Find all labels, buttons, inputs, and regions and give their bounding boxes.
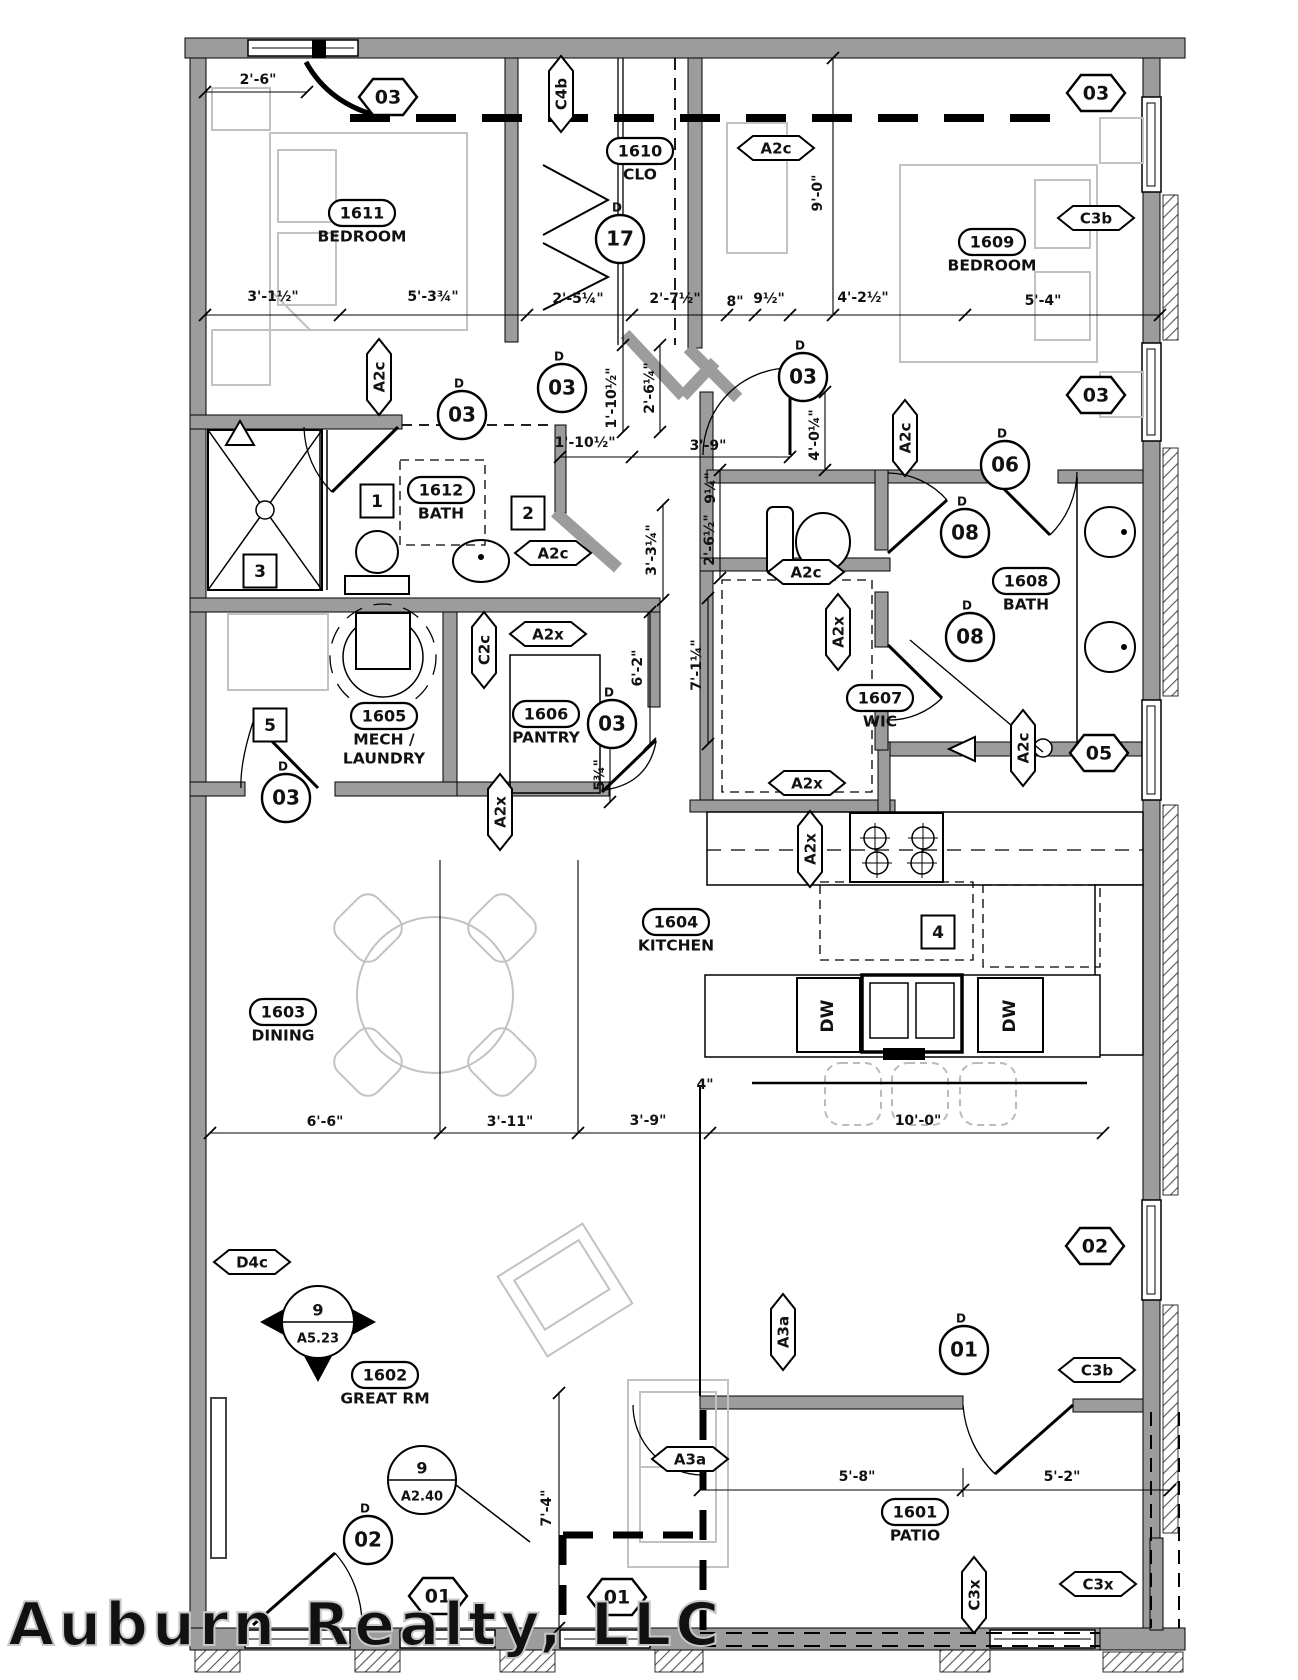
door-number: 01	[950, 1338, 978, 1362]
toilet-tank	[345, 576, 409, 594]
wall	[190, 415, 402, 429]
dimension-text: 3'-3¼"	[644, 524, 660, 575]
marker-sheet: A5.23	[297, 1332, 339, 1347]
wall-type-label: A2x	[791, 775, 823, 793]
wall-type-label: A2c	[761, 140, 792, 158]
keynote-square: 1	[361, 485, 394, 518]
wall-type-label: A3a	[775, 1316, 793, 1348]
door-letter: D	[795, 339, 805, 353]
wall	[335, 782, 460, 796]
window-number: 03	[1083, 83, 1109, 105]
dimension-text: 3'-11"	[487, 1114, 534, 1130]
wall-type-tag: C3x	[1060, 1572, 1136, 1596]
wall-type-label: A2c	[897, 423, 915, 454]
dimension-text: 2'-5¼"	[552, 291, 603, 307]
room-name: KITCHEN	[638, 937, 714, 955]
room-tag: 1604KITCHEN	[638, 909, 714, 955]
wall-type-label: C3x	[966, 1579, 984, 1610]
wall-type-label: A2c	[791, 564, 822, 582]
room-name: GREAT RM	[340, 1390, 429, 1408]
room-number: 1611	[340, 204, 385, 223]
dimension-text: 2'-6¼"	[642, 362, 658, 413]
door-letter: D	[604, 686, 614, 700]
door-number: 03	[789, 365, 817, 389]
marker-number: 9	[416, 1459, 427, 1478]
room-name: LAUNDRY	[343, 750, 426, 768]
room-tag: 1603DINING	[250, 999, 316, 1045]
dimension-text: 1'-10½"	[604, 367, 620, 428]
wall-type-tag: A3a	[652, 1447, 728, 1471]
toilet	[356, 531, 398, 573]
dimension-text: 4"	[696, 1077, 713, 1093]
room-name: BATH	[418, 505, 464, 523]
appliance-label: DW	[1000, 999, 1020, 1032]
wall-type-tag: C3b	[1058, 206, 1134, 230]
room-name: DINING	[251, 1027, 314, 1045]
door-number: 03	[272, 786, 300, 810]
wall-type-label: A2x	[802, 833, 820, 865]
door-letter: D	[962, 599, 972, 613]
wall-type-label: C2c	[476, 635, 494, 665]
door-number: 08	[956, 625, 984, 649]
wall	[1100, 1628, 1185, 1650]
door-number: 02	[354, 1528, 382, 1552]
dimension-text: 5'-3¾"	[407, 289, 458, 305]
window-number: 03	[375, 87, 401, 109]
wall	[190, 782, 245, 796]
keynote-number: 4	[932, 923, 944, 943]
wall-type-tag: A2x	[510, 622, 586, 646]
room-name: PATIO	[890, 1527, 940, 1545]
window-tag: 03	[1067, 377, 1125, 413]
wall	[1073, 1399, 1143, 1412]
door-letter: D	[612, 201, 622, 215]
wall-type-tag: A3a	[771, 1294, 795, 1370]
wall-type-label: A2x	[532, 626, 564, 644]
room-number: 1605	[362, 707, 407, 726]
wall-type-tag: A2c	[768, 560, 844, 584]
wall-type-tag: C3x	[962, 1557, 986, 1633]
wall-type-label: A2x	[830, 616, 848, 648]
floor-plan: 1611BEDROOM1610CLO1609BEDROOM1612BATH160…	[0, 0, 1298, 1680]
room-tag: 1601PATIO	[882, 1499, 948, 1545]
room-number: 1610	[618, 142, 663, 161]
wall	[1058, 470, 1143, 483]
wall-type-tag: A2x	[826, 594, 850, 670]
keynote-number: 3	[254, 562, 266, 582]
dimension-text: 1'-10½"	[554, 435, 615, 451]
wall-block	[312, 40, 326, 58]
sink	[453, 540, 509, 582]
keynote-square: 4	[922, 916, 955, 949]
window	[1142, 343, 1161, 441]
wall-type-label: A2c	[538, 545, 569, 563]
dimension-text: 9¼"	[703, 472, 719, 504]
keynote-number: 2	[522, 504, 534, 524]
marker-sheet: A2.40	[401, 1490, 443, 1505]
kitchen-sink	[862, 975, 962, 1052]
wall-type-label: C3b	[1080, 210, 1112, 228]
dimension-text: 6'-6"	[307, 1114, 344, 1130]
room-number: 1602	[363, 1366, 408, 1385]
hatched-masonry	[1103, 1652, 1183, 1672]
dimension-text: 5¾"	[592, 759, 608, 791]
sink	[1085, 507, 1135, 557]
room-name: CLO	[623, 166, 657, 184]
dimension-text: 4'-0¼"	[807, 409, 823, 460]
dimension-text: 6'-2"	[630, 650, 646, 687]
wall-type-label: C4b	[553, 78, 571, 110]
dimension-text: 9½"	[753, 291, 785, 307]
room-number: 1607	[858, 689, 903, 708]
keynote-square: 2	[512, 497, 545, 530]
window	[1142, 1200, 1161, 1300]
drain	[256, 501, 274, 519]
wall-type-tag: C3b	[1059, 1358, 1135, 1382]
keynote-square: 3	[244, 555, 277, 588]
room-number: 1603	[261, 1003, 306, 1022]
dimension-text: 2'-7½"	[649, 291, 700, 307]
door-number: 03	[548, 376, 576, 400]
wall-type-tag: D4c	[214, 1250, 290, 1274]
appliance-label: DW	[818, 999, 838, 1032]
room-number: 1606	[524, 705, 569, 724]
room-name: WIC	[863, 713, 897, 731]
window-tag: 02	[1066, 1228, 1124, 1264]
door-letter: D	[454, 377, 464, 391]
wall-type-label: A2c	[371, 362, 389, 393]
room-tag: 1606PANTRY	[512, 701, 581, 747]
window-number: 03	[1083, 385, 1109, 407]
room-name: MECH /	[353, 731, 415, 749]
room-name: BEDROOM	[318, 228, 407, 246]
door-number: 08	[951, 521, 979, 545]
watermark: Auburn Realty, LLC	[8, 1590, 723, 1660]
wall	[700, 1396, 963, 1409]
dimension-text: 3'-9"	[690, 438, 727, 454]
wall-type-label: C3x	[1082, 1576, 1113, 1594]
washer-box	[356, 613, 410, 669]
wall	[190, 598, 660, 612]
wall-type-label: D4c	[236, 1254, 268, 1272]
door-letter: D	[956, 1312, 966, 1326]
wall	[707, 470, 992, 483]
wall	[190, 58, 206, 1650]
marker-number: 9	[312, 1301, 323, 1320]
wall	[690, 800, 895, 812]
window-tag: 05	[1070, 735, 1128, 771]
cabinet	[1095, 885, 1143, 1055]
wall-type-tag: A2c	[367, 339, 391, 415]
room-number: 1608	[1004, 572, 1049, 591]
dimension-text: 8"	[726, 294, 743, 310]
keynote-number: 1	[371, 492, 383, 512]
hatched-masonry	[1163, 195, 1178, 340]
door-number: 06	[991, 453, 1019, 477]
dimension-text: 7'-4"	[539, 1490, 555, 1527]
door-letter: D	[360, 1502, 370, 1516]
dimension-text: 5'-2"	[1044, 1469, 1081, 1485]
keynote-square: 5	[254, 709, 287, 742]
wall-type-label: A2c	[1015, 733, 1033, 764]
wall-type-tag: A2c	[515, 541, 591, 565]
room-number: 1612	[419, 481, 464, 500]
wall	[875, 470, 888, 550]
dimension-text: 3'-9"	[630, 1113, 667, 1129]
wall	[875, 592, 888, 647]
hatched-masonry	[1163, 448, 1178, 696]
sink	[1085, 622, 1135, 672]
wall-type-tag: C2c	[472, 612, 496, 688]
dimension-text: 10'-0"	[895, 1113, 942, 1129]
room-name: BATH	[1003, 596, 1049, 614]
window-tag: 03	[1067, 75, 1125, 111]
wall-type-tag: A2x	[798, 811, 822, 887]
room-number: 1609	[970, 233, 1015, 252]
faucet	[883, 1048, 925, 1060]
wall-type-tag: C4b	[549, 56, 573, 132]
wall-type-tag: A2x	[488, 774, 512, 850]
dimension-text: 4'-2½"	[837, 290, 888, 306]
wall-type-tag: A2x	[769, 771, 845, 795]
wall	[457, 782, 609, 796]
door-letter: D	[278, 760, 288, 774]
door-letter: D	[554, 350, 564, 364]
dimension-text: 3'-1½"	[247, 289, 298, 305]
dimension-text: 2'-6½"	[702, 514, 718, 565]
dimension-text: 5'-4"	[1025, 293, 1062, 309]
door-number: 03	[598, 712, 626, 736]
door-letter: D	[957, 495, 967, 509]
shower-head	[1034, 739, 1052, 757]
wall-type-label: C3b	[1081, 1362, 1113, 1380]
wall	[878, 742, 890, 812]
wall-type-tag: A2c	[738, 136, 814, 160]
window-tag: 03	[359, 79, 417, 115]
dimension-text: 2'-6"	[240, 72, 277, 88]
door-letter: D	[997, 427, 1007, 441]
window-number: 05	[1086, 743, 1112, 765]
room-tag: 1605MECH /LAUNDRY	[343, 703, 426, 768]
door-number: 17	[606, 227, 634, 251]
room-number: 1604	[654, 913, 699, 932]
wall	[443, 612, 457, 792]
room-number: 1601	[893, 1503, 938, 1522]
keynote-number: 5	[264, 716, 276, 736]
dimension-text: 9'-0"	[810, 175, 826, 212]
room-name: BEDROOM	[948, 257, 1037, 275]
dimension-text: 7'-1¼"	[689, 639, 705, 690]
wall-type-label: A3a	[674, 1451, 706, 1469]
wall-type-tag: A2c	[893, 400, 917, 476]
room-name: PANTRY	[512, 729, 581, 747]
hatched-masonry	[1163, 805, 1178, 1195]
hatched-masonry	[940, 1650, 990, 1672]
door-number: 03	[448, 403, 476, 427]
wall	[505, 58, 518, 342]
dimension-text: 5'-8"	[839, 1469, 876, 1485]
window	[1142, 700, 1161, 800]
wall-type-label: A2x	[492, 796, 510, 828]
window-number: 02	[1082, 1236, 1108, 1258]
wall	[1143, 58, 1160, 1630]
wall-type-tag: A2c	[1011, 710, 1035, 786]
hatched-masonry	[1163, 1305, 1178, 1533]
window	[1142, 97, 1161, 192]
